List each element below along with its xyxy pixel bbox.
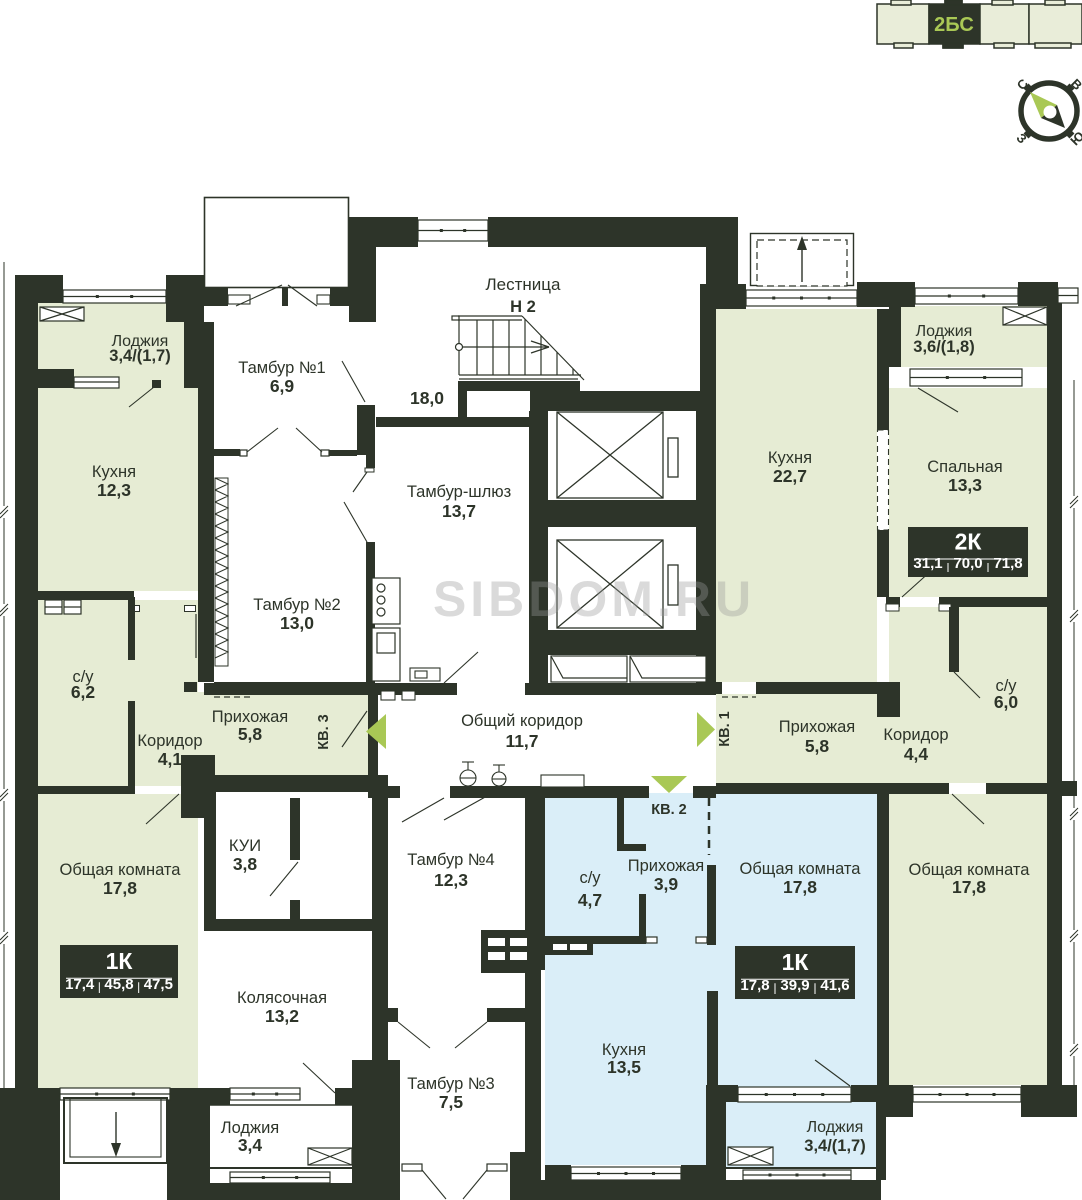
svg-text:КВ. 1: КВ. 1 [717,711,733,746]
svg-text:Тамбур №2: Тамбур №2 [253,596,340,614]
svg-text:КВ. 2: КВ. 2 [651,802,686,818]
svg-text:Кухня: Кухня [92,463,136,481]
svg-text:41,6: 41,6 [820,977,849,994]
svg-text:Тамбур №3: Тамбур №3 [407,1075,494,1093]
svg-text:4,4: 4,4 [904,744,929,764]
svg-text:71,8: 71,8 [993,555,1022,572]
svg-text:Лоджия: Лоджия [807,1119,864,1136]
svg-text:17,8: 17,8 [952,877,986,897]
svg-text:13,7: 13,7 [442,501,476,521]
svg-text:17,8: 17,8 [783,877,817,897]
svg-text:5,8: 5,8 [805,736,830,756]
svg-text:Общая комната: Общая комната [740,860,862,878]
svg-text:Прихожая: Прихожая [779,718,855,736]
svg-text:12,3: 12,3 [97,480,131,500]
svg-text:47,5: 47,5 [144,976,173,993]
svg-text:Колясочная: Колясочная [237,989,327,1007]
svg-text:3,4: 3,4 [238,1135,263,1155]
svg-text:45,8: 45,8 [104,976,133,993]
svg-text:Тамбур №1: Тамбур №1 [238,359,325,377]
svg-text:4,1: 4,1 [158,749,183,769]
svg-text:3,9: 3,9 [654,874,679,894]
svg-text:13,0: 13,0 [280,613,314,633]
svg-text:КВ. 3: КВ. 3 [316,714,332,749]
svg-text:18,0: 18,0 [410,388,444,408]
svg-text:3,4/(1,7): 3,4/(1,7) [109,347,170,365]
svg-text:Лестница: Лестница [486,275,562,294]
svg-text:6,2: 6,2 [71,682,96,702]
svg-text:1К: 1К [782,949,810,975]
svg-text:6,0: 6,0 [994,692,1019,712]
svg-text:7,5: 7,5 [439,1092,464,1112]
svg-text:Коридор: Коридор [137,732,202,750]
svg-text:Тамбур №4: Тамбур №4 [407,851,494,869]
svg-text:17,8: 17,8 [740,977,769,994]
svg-text:Спальная: Спальная [927,458,1002,476]
svg-text:Коридор: Коридор [883,726,948,744]
svg-text:6,9: 6,9 [270,376,295,396]
svg-text:11,7: 11,7 [505,731,538,751]
svg-text:13,2: 13,2 [265,1006,299,1026]
svg-text:13,5: 13,5 [607,1057,641,1077]
svg-text:13,3: 13,3 [948,475,982,495]
svg-text:1К: 1К [106,948,134,974]
svg-text:Общая комната: Общая комната [60,861,182,879]
svg-text:Кухня: Кухня [768,449,812,467]
svg-text:17,8: 17,8 [103,878,137,898]
svg-text:12,3: 12,3 [434,870,468,890]
svg-text:2БС: 2БС [934,14,974,36]
svg-text:31,1: 31,1 [913,555,942,572]
svg-text:22,7: 22,7 [773,466,807,486]
svg-text:3,4/(1,7): 3,4/(1,7) [804,1137,865,1155]
svg-text:4,7: 4,7 [578,890,602,910]
svg-text:Н 2: Н 2 [510,298,536,316]
svg-text:3,8: 3,8 [233,854,258,874]
svg-text:17,4: 17,4 [65,976,95,993]
svg-text:Общий коридор: Общий коридор [461,712,583,730]
svg-text:с/у: с/у [579,869,601,887]
svg-text:Прихожая: Прихожая [628,857,704,875]
svg-text:5,8: 5,8 [238,724,263,744]
svg-text:39,9: 39,9 [780,977,809,994]
svg-text:70,0: 70,0 [953,555,982,572]
svg-text:SIBDOM.RU: SIBDOM.RU [433,571,755,627]
svg-text:КУИ: КУИ [229,837,261,855]
svg-text:Тамбур-шлюз: Тамбур-шлюз [407,483,511,501]
svg-text:2К: 2К [955,529,983,555]
svg-text:3,6/(1,8): 3,6/(1,8) [913,338,974,356]
